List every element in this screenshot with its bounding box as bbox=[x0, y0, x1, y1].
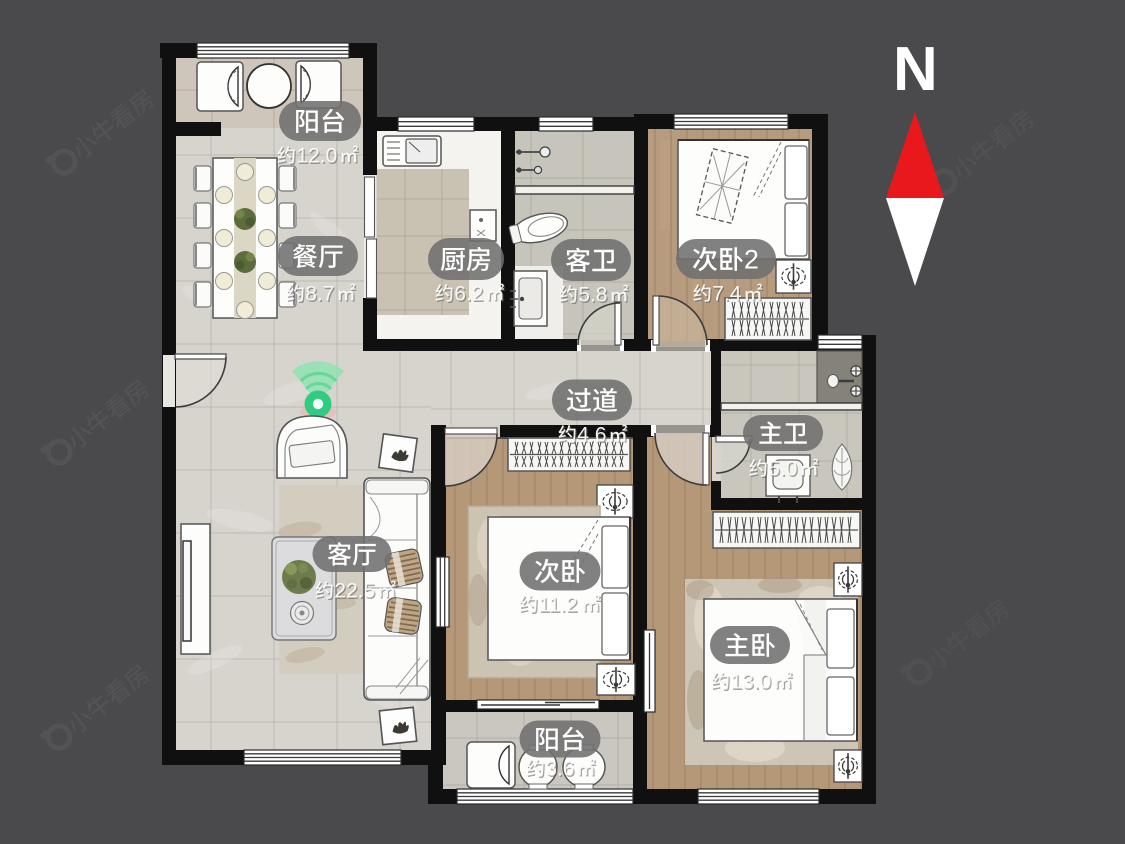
svg-text:22.5: 22.5 bbox=[334, 580, 375, 603]
svg-text:4.6: 4.6 bbox=[577, 424, 606, 447]
svg-text:2: 2 bbox=[744, 244, 759, 274]
svg-text:12.0: 12.0 bbox=[296, 145, 337, 168]
svg-text:N: N bbox=[893, 35, 938, 104]
svg-text:5.8: 5.8 bbox=[578, 284, 607, 307]
svg-text:7.4: 7.4 bbox=[712, 283, 742, 306]
svg-text:5.0: 5.0 bbox=[768, 458, 797, 481]
svg-text:6.2: 6.2 bbox=[454, 283, 483, 306]
svg-text:13.0: 13.0 bbox=[730, 671, 771, 694]
svg-text:11.2: 11.2 bbox=[538, 594, 577, 617]
svg-text:3.6: 3.6 bbox=[545, 758, 574, 781]
svg-text:8.7: 8.7 bbox=[305, 283, 334, 306]
